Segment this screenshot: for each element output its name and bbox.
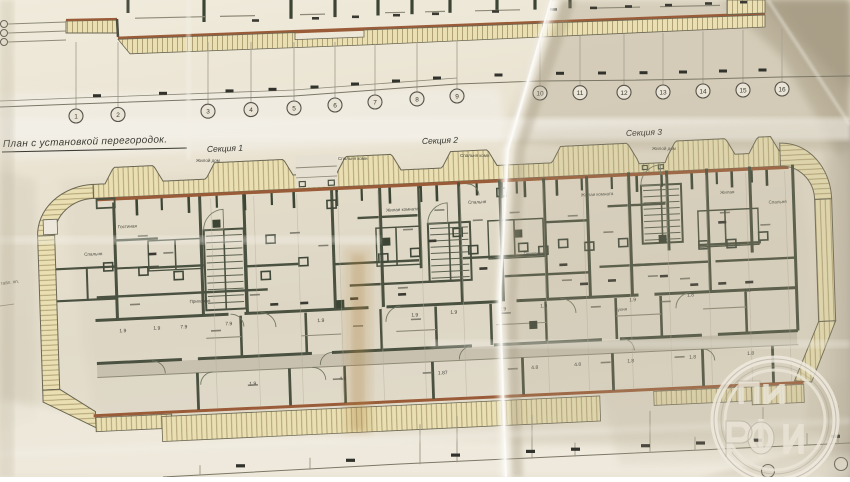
svg-text:1.9: 1.9 xyxy=(450,310,457,316)
svg-text:7.9: 7.9 xyxy=(225,321,232,327)
svg-text:1.9: 1.9 xyxy=(411,312,418,318)
svg-text:Спальня комн: Спальня комн xyxy=(338,156,368,161)
svg-text:3: 3 xyxy=(206,109,210,116)
svg-text:Прихожая: Прихожая xyxy=(190,298,212,304)
svg-text:9: 9 xyxy=(455,94,459,101)
svg-text:Секция 2: Секция 2 xyxy=(422,135,459,146)
svg-text:Спальня комн: Спальня комн xyxy=(460,153,490,158)
svg-text:4: 4 xyxy=(249,107,253,114)
svg-text:8: 8 xyxy=(415,96,419,103)
svg-text:Спальня: Спальня xyxy=(84,251,103,257)
svg-text:1: 1 xyxy=(74,114,78,121)
svg-text:11: 11 xyxy=(577,90,584,97)
svg-text:Спальня: Спальня xyxy=(468,199,487,205)
svg-text:15: 15 xyxy=(739,88,747,95)
svg-text:2: 2 xyxy=(116,112,120,119)
svg-text:6: 6 xyxy=(333,103,337,110)
svg-text:14: 14 xyxy=(699,89,707,96)
svg-text:Гостиная: Гостиная xyxy=(118,223,138,229)
svg-text:Жилой дом: Жилой дом xyxy=(196,157,220,163)
svg-text:1.87: 1.87 xyxy=(438,370,448,376)
svg-text:5: 5 xyxy=(292,106,296,113)
svg-text:16: 16 xyxy=(778,87,786,94)
svg-text:Секция 1: Секция 1 xyxy=(207,143,244,154)
svg-text:13: 13 xyxy=(659,90,667,97)
svg-text:12: 12 xyxy=(620,90,628,97)
svg-text:1.9: 1.9 xyxy=(153,325,160,331)
svg-text:1.9: 1.9 xyxy=(119,328,126,334)
svg-text:7.9: 7.9 xyxy=(180,324,187,330)
svg-text:1.9: 1.9 xyxy=(317,318,324,324)
svg-text:7: 7 xyxy=(373,100,377,107)
